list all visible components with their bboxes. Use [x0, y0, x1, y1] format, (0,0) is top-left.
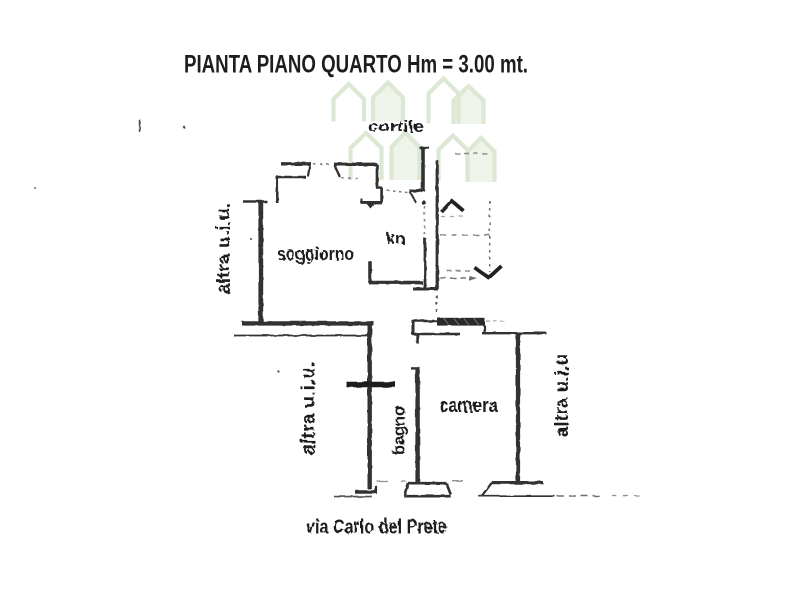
svg-text:cortile: cortile	[368, 117, 424, 136]
svg-text:altra u.i.u.: altra u.i.u.	[214, 203, 235, 294]
svg-text:altra u.i.u: altra u.i.u	[552, 354, 573, 437]
svg-text:altra u.i.u.: altra u.i.u.	[299, 362, 320, 455]
svg-text:bagno: bagno	[391, 406, 409, 455]
svg-text:kn: kn	[386, 229, 405, 248]
svg-text:camera: camera	[439, 395, 499, 417]
svg-text:via Carlo del Prete: via Carlo del Prete	[306, 517, 447, 539]
svg-text:soggiorno: soggiorno	[277, 244, 354, 264]
svg-text:PIANTA PIANO QUARTO Hm = 3.00: PIANTA PIANO QUARTO Hm = 3.00 mt.	[184, 51, 528, 79]
